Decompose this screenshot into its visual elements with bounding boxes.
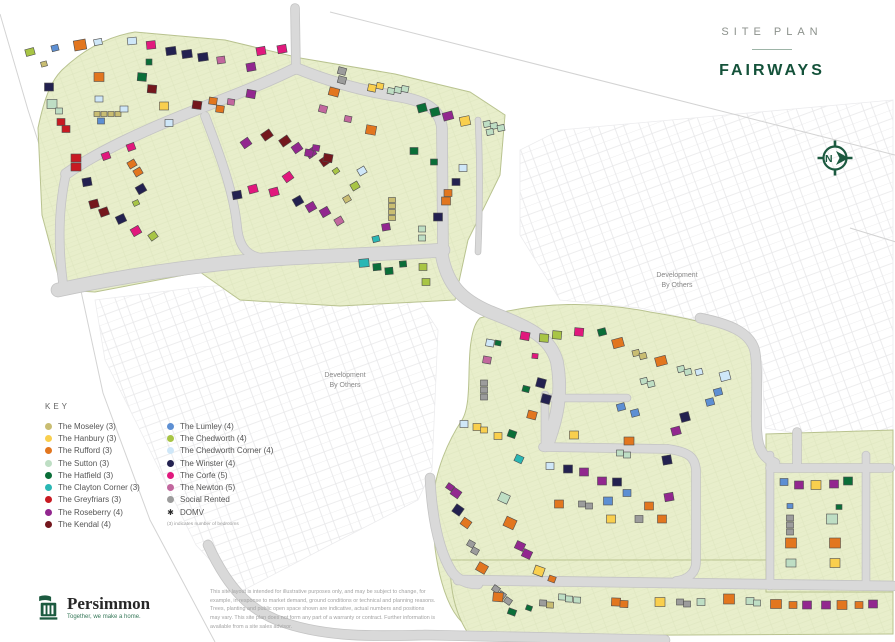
house-hatfield	[399, 261, 406, 268]
key-item-label: The Chedworth Corner (4)	[180, 446, 273, 455]
key-color-dot	[167, 472, 174, 479]
house-roseberry	[580, 468, 589, 476]
house-hatfield	[373, 263, 382, 271]
house-sutton	[419, 235, 426, 241]
house-corfe	[532, 353, 538, 359]
house-hanbury	[494, 433, 502, 440]
house-winster	[165, 46, 176, 55]
key-item-label: The Rufford (3)	[58, 446, 112, 455]
house-greyfriars	[57, 119, 65, 126]
house-sutton	[624, 452, 631, 458]
key-legend: KEY The Moseley (3)The Hanbury (3)The Ru…	[45, 402, 305, 531]
key-item-label: The Clayton Corner (3)	[58, 483, 140, 492]
house-corfe	[277, 44, 287, 53]
house-moseley	[389, 216, 396, 221]
house-social	[787, 515, 794, 521]
key-color-dot	[45, 447, 52, 454]
house-lumley	[98, 118, 105, 124]
key-item-label: The Corfe (5)	[180, 471, 228, 480]
key-color-dot	[167, 484, 174, 491]
key-item-hanbury: The Hanbury (3)	[45, 432, 167, 444]
key-item-label: The Greyfriars (3)	[58, 495, 121, 504]
key-item-label: The Hanbury (3)	[58, 434, 116, 443]
key-item-label: The Roseberry (4)	[58, 508, 123, 517]
key-item-sutton: The Sutton (3)	[45, 457, 167, 469]
house-social	[481, 380, 488, 386]
key-item-kendal: The Kendal (4)	[45, 518, 167, 530]
house-sutton	[786, 559, 796, 567]
key-color-dot	[167, 447, 174, 454]
house-greyfriars	[71, 154, 81, 162]
house-kendal	[147, 85, 157, 94]
house-sutton	[565, 596, 572, 602]
house-lumley	[787, 504, 793, 509]
house-hanbury	[367, 84, 376, 93]
house-roseberry	[795, 481, 804, 489]
key-color-dot	[45, 460, 52, 467]
house-social	[539, 600, 546, 606]
house-clayton	[359, 259, 370, 268]
house-lumley	[780, 479, 788, 486]
brand-block: Persimmon Together, we make a home.	[36, 595, 150, 622]
house-newton	[344, 115, 352, 122]
key-item-newton: The Newton (5)	[167, 481, 273, 493]
house-newton	[227, 99, 235, 106]
key-item-clayton: The Clayton Corner (3)	[45, 481, 167, 493]
house-hanbury	[655, 598, 665, 607]
house-chedworth_corner	[485, 339, 494, 347]
house-sutton	[827, 514, 838, 524]
key-item-label: The Newton (5)	[180, 483, 235, 492]
house-winster	[181, 49, 192, 58]
house-roseberry	[803, 601, 812, 609]
key-item-label: DOMV	[180, 508, 204, 517]
key-item-label: Social Rented	[180, 495, 230, 504]
house-hanbury	[570, 431, 579, 439]
compass-label: N	[825, 153, 833, 165]
house-kendal	[192, 100, 202, 109]
house-chedworth	[422, 279, 430, 286]
site-plan-page: SITE PLAN FAIRWAYS N Development By Othe…	[0, 0, 895, 642]
house-rufford	[555, 500, 564, 508]
house-rufford	[789, 602, 797, 609]
key-color-dot	[45, 484, 52, 491]
house-rufford	[365, 125, 376, 136]
house-newton	[217, 56, 226, 64]
house-hatfield	[385, 267, 394, 275]
house-rufford	[620, 600, 628, 607]
house-rufford	[73, 39, 87, 51]
house-rufford	[830, 538, 841, 548]
house-winster	[45, 83, 54, 91]
house-hanbury	[830, 559, 840, 568]
key-column-2: The Lumley (4)The Chedworth (4)The Chedw…	[167, 420, 273, 531]
house-roseberry	[869, 600, 878, 608]
house-winster	[82, 177, 92, 186]
key-item-label: The Lumley (4)	[180, 422, 234, 431]
key-color-dot	[45, 472, 52, 479]
development-by-others-label: Development By Others	[324, 371, 365, 391]
house-sutton	[419, 226, 426, 232]
house-moseley	[389, 210, 396, 215]
house-rufford	[209, 97, 218, 105]
house-chedworth_corner	[120, 106, 128, 112]
house-chedworth_corner	[165, 120, 173, 127]
house-moseley	[101, 112, 107, 117]
brand-name: Persimmon	[67, 595, 150, 612]
house-chedworth_corner	[546, 463, 554, 470]
key-item-corfe: The Corfe (5)	[167, 469, 273, 481]
key-item-social: Social Rented	[167, 494, 273, 506]
house-winster	[535, 377, 546, 388]
house-rufford	[658, 515, 667, 523]
house-rufford	[855, 602, 863, 609]
house-sutton	[558, 594, 565, 600]
house-rufford	[442, 197, 451, 205]
house-sutton	[617, 450, 624, 456]
title-block: SITE PLAN FAIRWAYS	[688, 26, 856, 80]
house-winster	[540, 393, 551, 404]
house-corfe	[520, 331, 530, 340]
house-roseberry	[664, 492, 674, 501]
house-winster	[434, 213, 443, 221]
house-hatfield	[844, 477, 853, 485]
key-item-label: The Winster (4)	[180, 459, 235, 468]
house-roseberry	[598, 477, 607, 485]
key-color-dot	[45, 521, 52, 528]
house-lumley	[51, 44, 59, 52]
house-winster	[613, 478, 622, 486]
house-moseley	[546, 602, 553, 608]
key-color-dot	[45, 435, 52, 442]
house-moseley	[94, 112, 100, 117]
house-chedworth_corner	[127, 37, 137, 45]
house-greyfriars	[62, 126, 70, 133]
key-color-dot	[167, 496, 174, 503]
house-corfe	[574, 328, 584, 337]
house-moseley	[389, 204, 396, 209]
key-item-chedworth: The Chedworth (4)	[167, 432, 273, 444]
development-by-others-label: Development By Others	[656, 271, 697, 291]
house-hanbury	[376, 82, 384, 89]
house-social	[635, 516, 643, 523]
house-social	[677, 599, 684, 605]
house-hanbury	[811, 481, 821, 490]
house-rufford	[493, 592, 504, 602]
house-hanbury	[160, 102, 169, 110]
key-color-dot	[45, 496, 52, 503]
house-sutton	[573, 597, 580, 603]
house-chedworth_corner	[94, 38, 103, 45]
house-roseberry	[381, 223, 390, 231]
house-roseberry	[246, 89, 256, 98]
house-social	[579, 501, 586, 507]
house-hanbury	[459, 116, 471, 127]
house-winster	[197, 52, 208, 61]
key-item-greyfriars: The Greyfriars (3)	[45, 494, 167, 506]
house-sutton	[697, 599, 705, 606]
title-divider	[752, 49, 792, 50]
key-item-moseley: The Moseley (3)	[45, 420, 167, 432]
house-rufford	[94, 73, 104, 82]
house-sutton	[401, 85, 409, 92]
key-item-roseberry: The Roseberry (4)	[45, 506, 167, 518]
house-social	[787, 529, 794, 535]
house-sutton	[746, 598, 754, 605]
key-item-label: The Hatfield (3)	[58, 471, 113, 480]
house-social	[481, 394, 488, 400]
house-corfe	[256, 46, 266, 55]
house-hatfield	[146, 59, 152, 65]
house-social	[684, 601, 691, 607]
house-sutton	[56, 108, 63, 114]
house-chedworth_corner	[95, 96, 103, 102]
house-rufford	[216, 105, 225, 113]
key-color-dot	[45, 423, 52, 430]
house-hanbury	[607, 515, 616, 523]
house-hanbury	[481, 427, 488, 433]
house-roseberry	[312, 144, 320, 151]
key-color-dot	[45, 509, 52, 516]
house-kendal	[323, 153, 333, 162]
house-roseberry	[822, 601, 831, 609]
disclaimer-text: This site layout is intended for illustr…	[210, 588, 436, 631]
key-color-dot	[167, 460, 174, 467]
house-sutton	[497, 124, 505, 131]
key-item-label: The Kendal (4)	[58, 520, 111, 529]
house-hatfield	[495, 340, 502, 346]
house-chedworth	[539, 334, 549, 343]
house-rufford	[771, 600, 782, 609]
key-item-chedworth_corner: The Chedworth Corner (4)	[167, 445, 273, 457]
house-lumley	[604, 497, 613, 505]
house-social	[586, 503, 593, 509]
house-winster	[452, 179, 460, 186]
key-item-domv: ✱DOMV	[167, 506, 273, 518]
key-item-label: The Sutton (3)	[58, 459, 109, 468]
house-lumley	[623, 490, 631, 497]
key-column-1: The Moseley (3)The Hanbury (3)The Ruffor…	[45, 420, 167, 531]
key-color-dot	[167, 435, 174, 442]
north-compass-icon: N	[815, 138, 855, 178]
house-rufford	[724, 594, 735, 604]
house-roseberry	[246, 62, 256, 71]
house-sutton	[394, 86, 402, 93]
development-name: FAIRWAYS	[688, 62, 856, 80]
house-sutton	[486, 128, 494, 135]
house-corfe	[146, 41, 156, 50]
page-title: SITE PLAN	[688, 26, 856, 38]
house-chedworth	[25, 47, 36, 56]
house-chedworth_corner	[460, 421, 468, 428]
house-newton	[482, 356, 491, 364]
site-plan-map	[0, 0, 895, 642]
house-moseley	[389, 198, 396, 203]
house-greyfriars	[71, 163, 81, 171]
house-chedworth	[419, 264, 427, 271]
house-rufford	[645, 502, 654, 510]
persimmon-logo-icon	[36, 595, 61, 622]
house-hanbury	[473, 424, 481, 431]
house-winster	[662, 455, 672, 465]
house-social	[787, 522, 794, 528]
house-winster	[564, 465, 573, 473]
house-moseley	[40, 61, 47, 67]
house-sutton	[47, 100, 57, 109]
domv-asterisk-icon: ✱	[167, 509, 174, 516]
key-item-label: The Moseley (3)	[58, 422, 116, 431]
house-sutton	[754, 600, 761, 606]
house-rufford	[444, 190, 452, 197]
house-hatfield	[410, 148, 418, 155]
key-heading: KEY	[45, 402, 305, 411]
key-color-dot	[167, 423, 174, 430]
key-item-lumley: The Lumley (4)	[167, 420, 273, 432]
house-hatfield	[137, 73, 147, 82]
key-item-rufford: The Rufford (3)	[45, 445, 167, 457]
house-hatfield	[431, 159, 438, 165]
house-rufford	[837, 601, 847, 610]
house-social	[481, 387, 488, 393]
house-winster	[679, 411, 690, 422]
house-winster	[232, 190, 242, 199]
house-moseley	[108, 112, 114, 117]
brand-tagline: Together, we make a home.	[67, 614, 150, 620]
house-sutton	[387, 87, 395, 94]
bedrooms-note: (3) indicates number of bedrooms	[167, 522, 273, 527]
house-roseberry	[830, 480, 839, 488]
key-item-winster: The Winster (4)	[167, 457, 273, 469]
house-rufford	[611, 598, 620, 606]
house-chedworth	[552, 331, 562, 340]
house-rufford	[786, 538, 797, 548]
key-item-hatfield: The Hatfield (3)	[45, 469, 167, 481]
key-item-label: The Chedworth (4)	[180, 434, 247, 443]
house-rufford	[624, 437, 634, 445]
house-chedworth_corner	[459, 165, 467, 172]
house-hatfield	[836, 505, 842, 510]
